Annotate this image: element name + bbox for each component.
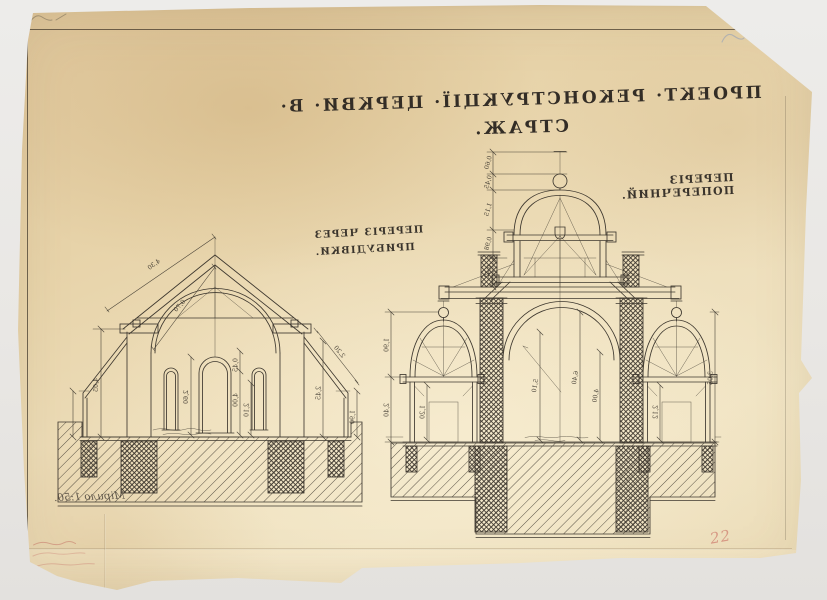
- dim-label: 5,10: [531, 378, 540, 393]
- dim-label: 6,40: [571, 370, 580, 385]
- dim-label: 0,45: [483, 175, 493, 190]
- left-section-drawing: 4,30 0,70 4,05 2,60 0,45 4,00 2,10 2,45 …: [55, 225, 370, 517]
- dimension-labels: 4,30 0,70 4,05 2,60 0,45 4,00 2,10 2,45 …: [93, 258, 357, 424]
- dim-label: 4,05: [93, 378, 100, 392]
- archive-page-number: 22: [709, 526, 733, 547]
- dim-label: 2,12: [653, 405, 660, 419]
- dim-label: 3,05: [708, 371, 715, 385]
- dim-label: 0,60: [483, 155, 493, 170]
- dim-label: 2,20: [332, 344, 346, 359]
- dim-label: 4,00: [233, 393, 240, 407]
- dim-label: 1,90: [384, 338, 391, 352]
- dim-label: 1,15: [483, 202, 493, 217]
- dim-label: 2,10: [244, 403, 251, 417]
- masonry-piers: [476, 298, 647, 443]
- scale-note-text: Мірило 1:50.: [54, 490, 125, 504]
- border-frame-left: [27, 29, 28, 548]
- dim-label: 4,00: [591, 388, 600, 403]
- dimension-lines: [385, 149, 719, 445]
- main-arch: [503, 236, 620, 442]
- dim-label: 0,45: [233, 358, 240, 372]
- desk-background: ПРОЕКТ· РЕКОНСТРУКЦІЇ· ЦЕРКВИ· В· СТРАЖ.…: [0, 0, 827, 600]
- drawing-sheet: ПРОЕКТ· РЕКОНСТРУКЦІЇ· ЦЕРКВИ· В· СТРАЖ.…: [0, 0, 827, 600]
- cupola-truss: [524, 195, 596, 287]
- side-aisles: [79, 337, 350, 437]
- dim-label: 2,45: [316, 386, 323, 400]
- dim-label: 2,40: [384, 403, 391, 417]
- ground-hatch: [386, 437, 721, 538]
- border-frame-right: [785, 96, 786, 540]
- drawing-title: ПРОЕКТ· РЕКОНСТРУКЦІЇ· ЦЕРКВИ· В· СТРАЖ.: [250, 78, 791, 122]
- right-section-drawing: 0,60 0,45 1,15 0,98 0,42 1,90 2,40 1,20 …: [383, 140, 723, 550]
- pencil-scribble: [26, 2, 78, 32]
- finial-ball: [553, 152, 567, 191]
- arched-windows: [162, 357, 268, 433]
- archive-number-mark: [716, 20, 760, 52]
- dim-label: 4,30: [146, 258, 161, 272]
- dim-label: 0,98: [483, 236, 493, 251]
- fold-strip: [24, 550, 796, 594]
- walls-and-vault: [120, 289, 311, 438]
- dim-label: 1,20: [420, 405, 427, 419]
- border-frame-top: [27, 29, 743, 30]
- dim-label: 1,90: [350, 410, 357, 424]
- dim-label: 2,60: [183, 390, 190, 404]
- left-chapel-dome: [400, 301, 484, 442]
- right-chapel-dome: [633, 301, 717, 442]
